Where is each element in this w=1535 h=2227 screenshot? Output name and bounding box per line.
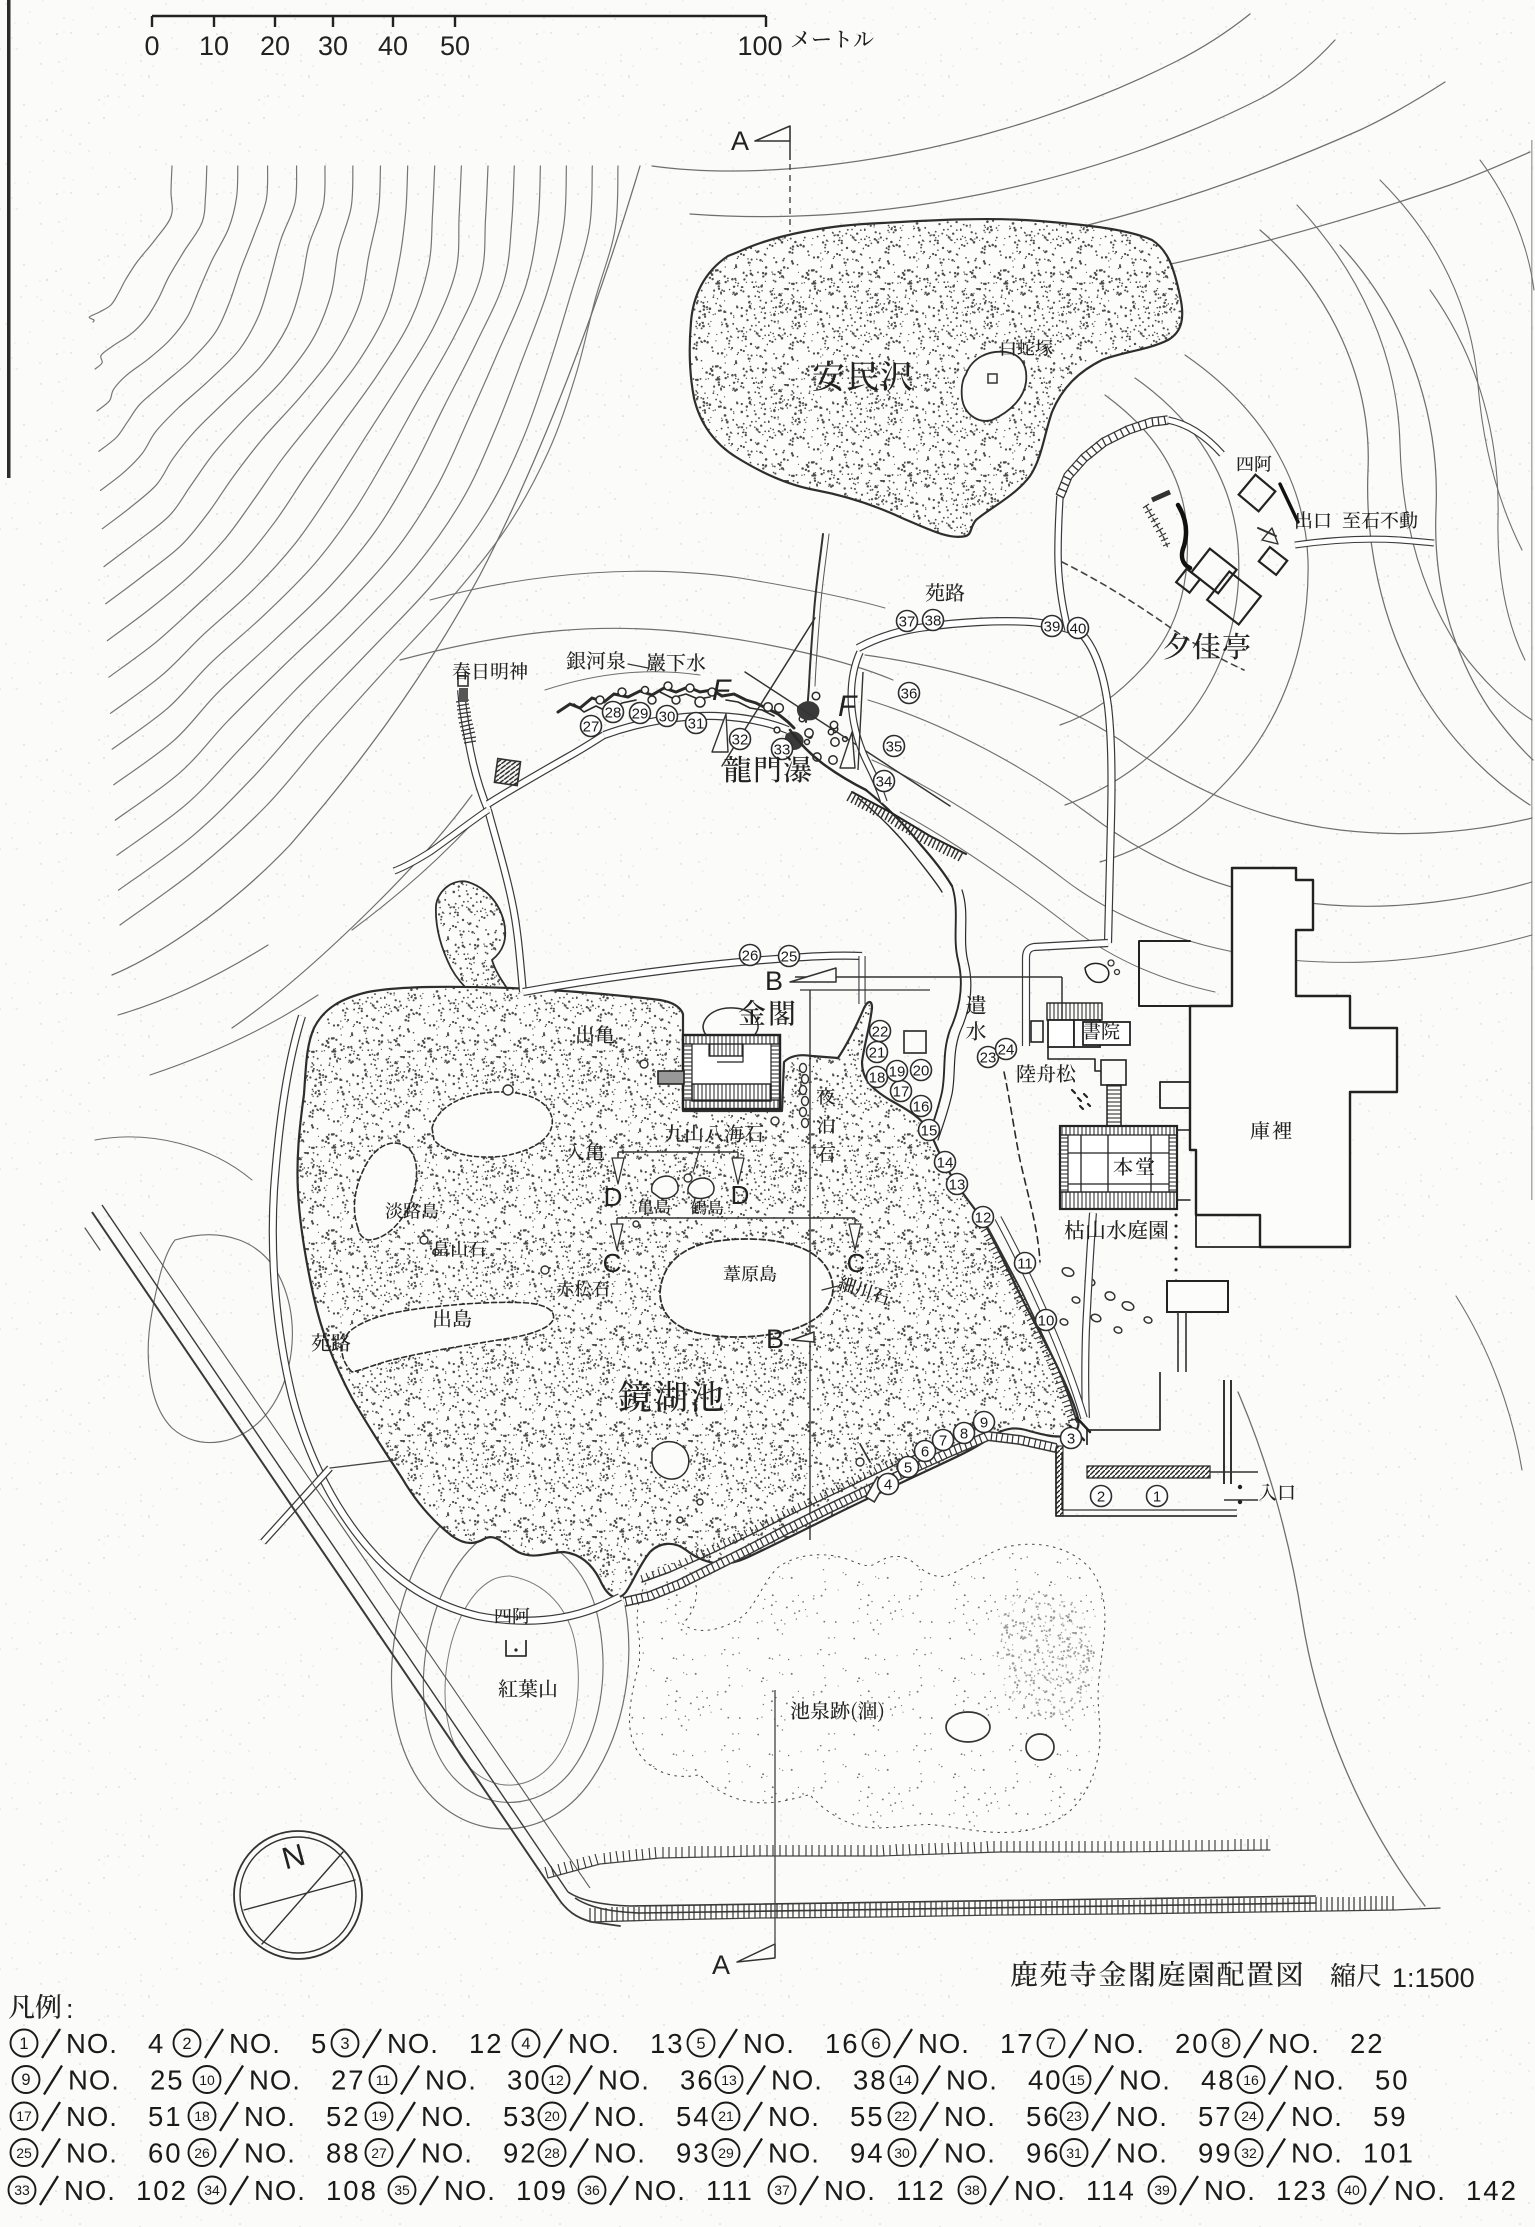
svg-text:17: 17 xyxy=(1000,2028,1035,2059)
svg-text:NO.: NO. xyxy=(444,2175,496,2206)
svg-text:10: 10 xyxy=(1038,1312,1055,1329)
svg-text:F: F xyxy=(712,674,732,707)
svg-text:1: 1 xyxy=(1153,1488,1161,1505)
svg-text:92: 92 xyxy=(503,2138,538,2169)
svg-text:25: 25 xyxy=(150,2065,185,2096)
svg-text:22: 22 xyxy=(1350,2028,1385,2059)
svg-text:NO.: NO. xyxy=(743,2028,795,2059)
svg-text:31: 31 xyxy=(688,715,705,732)
svg-text:13: 13 xyxy=(949,1176,966,1193)
svg-text:NO.: NO. xyxy=(66,2101,118,2132)
svg-text:99: 99 xyxy=(1198,2138,1233,2169)
svg-text:24: 24 xyxy=(998,1041,1015,1058)
svg-text:28: 28 xyxy=(544,2145,560,2161)
svg-text:50: 50 xyxy=(440,31,470,61)
svg-text:114: 114 xyxy=(1086,2175,1136,2206)
svg-text:5: 5 xyxy=(696,2035,705,2053)
svg-text:52: 52 xyxy=(326,2101,361,2132)
svg-text:A: A xyxy=(712,1950,730,1980)
svg-text:7: 7 xyxy=(1046,2035,1055,2053)
svg-text:NO.: NO. xyxy=(1116,2101,1168,2132)
svg-text:NO.: NO. xyxy=(594,2138,646,2169)
svg-text:36: 36 xyxy=(680,2065,715,2096)
svg-text:B: B xyxy=(765,966,783,996)
svg-text:2: 2 xyxy=(1097,1488,1105,1505)
svg-text:NO.: NO. xyxy=(594,2101,646,2132)
svg-text:11: 11 xyxy=(1017,1255,1033,1272)
svg-text:27: 27 xyxy=(371,2145,387,2161)
svg-text:A: A xyxy=(731,126,749,156)
svg-text:38: 38 xyxy=(853,2065,888,2096)
svg-text:1:1500: 1:1500 xyxy=(1392,1963,1475,1993)
svg-text:88: 88 xyxy=(326,2138,361,2169)
svg-text:NO.: NO. xyxy=(244,2101,296,2132)
svg-text:33: 33 xyxy=(14,2182,30,2198)
svg-text:9: 9 xyxy=(980,1414,988,1431)
svg-text:54: 54 xyxy=(676,2101,711,2132)
svg-text:NO.: NO. xyxy=(421,2138,473,2169)
svg-text:12: 12 xyxy=(469,2028,504,2059)
svg-text:30: 30 xyxy=(318,31,348,61)
svg-text:20: 20 xyxy=(913,1062,930,1079)
svg-text:6: 6 xyxy=(921,1443,929,1460)
svg-text:NO.: NO. xyxy=(944,2138,996,2169)
svg-text:19: 19 xyxy=(371,2108,387,2124)
svg-text:29: 29 xyxy=(632,705,649,722)
svg-text:NO.: NO. xyxy=(66,2138,118,2169)
svg-text:96: 96 xyxy=(1026,2138,1061,2169)
svg-text:13: 13 xyxy=(721,2072,737,2088)
svg-text:NO.: NO. xyxy=(918,2028,970,2059)
svg-text:26: 26 xyxy=(194,2145,210,2161)
svg-text:14: 14 xyxy=(896,2072,912,2088)
svg-text:F: F xyxy=(838,690,858,723)
svg-text:8: 8 xyxy=(960,1425,968,1442)
svg-text:53: 53 xyxy=(503,2101,538,2132)
svg-text:20: 20 xyxy=(544,2108,560,2124)
svg-text:108: 108 xyxy=(326,2175,378,2206)
svg-text:102: 102 xyxy=(136,2175,188,2206)
svg-text:17: 17 xyxy=(16,2108,32,2124)
svg-text:36: 36 xyxy=(901,685,918,702)
svg-text:NO.: NO. xyxy=(768,2138,820,2169)
svg-text:5: 5 xyxy=(904,1459,912,1476)
svg-text:NO.: NO. xyxy=(1093,2028,1145,2059)
svg-text:38: 38 xyxy=(964,2182,980,2198)
svg-text:C: C xyxy=(603,1248,622,1278)
svg-text:NO.: NO. xyxy=(64,2175,116,2206)
svg-text:36: 36 xyxy=(584,2182,600,2198)
svg-text:40: 40 xyxy=(1344,2182,1360,2198)
svg-text:142: 142 xyxy=(1466,2175,1518,2206)
svg-text:27: 27 xyxy=(583,718,600,735)
svg-text:NO.: NO. xyxy=(229,2028,281,2059)
svg-text:4: 4 xyxy=(521,2035,530,2053)
svg-text:NO.: NO. xyxy=(254,2175,306,2206)
svg-text:18: 18 xyxy=(194,2108,210,2124)
svg-text:NO.: NO. xyxy=(1204,2175,1256,2206)
svg-text:100: 100 xyxy=(737,31,782,61)
svg-text:10: 10 xyxy=(199,2072,215,2088)
svg-text:4: 4 xyxy=(884,1476,892,1493)
svg-text:59: 59 xyxy=(1373,2101,1408,2132)
svg-text:NO.: NO. xyxy=(771,2065,823,2096)
svg-text:12: 12 xyxy=(548,2072,564,2088)
svg-text:20: 20 xyxy=(1175,2028,1210,2059)
svg-text:26: 26 xyxy=(742,947,759,964)
svg-text:NO.: NO. xyxy=(1119,2065,1171,2096)
svg-text:NO.: NO. xyxy=(1014,2175,1066,2206)
svg-text:109: 109 xyxy=(516,2175,568,2206)
svg-text:25: 25 xyxy=(16,2145,32,2161)
svg-text:34: 34 xyxy=(876,773,893,790)
svg-text:40: 40 xyxy=(1028,2065,1063,2096)
svg-text:C: C xyxy=(847,1248,866,1278)
svg-text:60: 60 xyxy=(148,2138,183,2169)
svg-text:20: 20 xyxy=(260,31,290,61)
svg-text:12: 12 xyxy=(975,1209,992,1226)
svg-text:NO.: NO. xyxy=(946,2065,998,2096)
svg-text:123: 123 xyxy=(1276,2175,1328,2206)
svg-text:NO.: NO. xyxy=(768,2101,820,2132)
svg-text:16: 16 xyxy=(913,1098,930,1115)
svg-text:NO.: NO. xyxy=(66,2028,118,2059)
svg-text:NO.: NO. xyxy=(68,2065,120,2096)
svg-text:31: 31 xyxy=(1066,2145,1082,2161)
svg-text:51: 51 xyxy=(148,2101,183,2132)
svg-text:D: D xyxy=(604,1182,623,1212)
svg-text:30: 30 xyxy=(894,2145,910,2161)
svg-text:NO.: NO. xyxy=(1394,2175,1446,2206)
svg-text:55: 55 xyxy=(850,2101,885,2132)
svg-text:NO.: NO. xyxy=(249,2065,301,2096)
svg-text:NO.: NO. xyxy=(244,2138,296,2169)
svg-text:28: 28 xyxy=(605,704,622,721)
svg-text:35: 35 xyxy=(394,2182,410,2198)
svg-text:16: 16 xyxy=(1243,2072,1259,2088)
svg-text:3: 3 xyxy=(340,2035,349,2053)
svg-text:2: 2 xyxy=(182,2035,191,2053)
svg-text:37: 37 xyxy=(899,613,916,630)
svg-text:23: 23 xyxy=(1066,2108,1082,2124)
svg-text:11: 11 xyxy=(376,2072,391,2088)
svg-text:48: 48 xyxy=(1201,2065,1236,2096)
svg-text:23: 23 xyxy=(980,1049,997,1066)
svg-text:NO.: NO. xyxy=(1291,2138,1343,2169)
svg-text:57: 57 xyxy=(1198,2101,1233,2132)
svg-text:101: 101 xyxy=(1363,2138,1415,2169)
svg-text::: : xyxy=(66,1994,74,2024)
svg-text:112: 112 xyxy=(896,2175,946,2206)
svg-text:NO.: NO. xyxy=(1293,2065,1345,2096)
svg-text:16: 16 xyxy=(825,2028,860,2059)
svg-text:9: 9 xyxy=(21,2071,30,2089)
svg-text:37: 37 xyxy=(774,2182,790,2198)
svg-text:27: 27 xyxy=(331,2065,366,2096)
svg-text:4: 4 xyxy=(148,2028,165,2059)
svg-text:6: 6 xyxy=(871,2035,880,2053)
svg-text:0: 0 xyxy=(144,31,159,61)
svg-text:17: 17 xyxy=(893,1083,910,1100)
svg-text:18: 18 xyxy=(869,1069,886,1086)
svg-text:40: 40 xyxy=(1070,620,1087,637)
svg-text:B: B xyxy=(766,1324,784,1354)
svg-text:32: 32 xyxy=(732,731,749,748)
svg-text:7: 7 xyxy=(939,1432,947,1449)
svg-text:39: 39 xyxy=(1154,2182,1170,2198)
svg-text:NO.: NO. xyxy=(421,2101,473,2132)
svg-text:56: 56 xyxy=(1026,2101,1061,2132)
svg-text:35: 35 xyxy=(886,738,903,755)
svg-text:3: 3 xyxy=(1067,1430,1075,1447)
svg-text:5: 5 xyxy=(311,2028,328,2059)
svg-text:NO.: NO. xyxy=(598,2065,650,2096)
svg-text:14: 14 xyxy=(937,1154,954,1171)
svg-text:22: 22 xyxy=(894,2108,910,2124)
svg-text:NO.: NO. xyxy=(568,2028,620,2059)
svg-text:34: 34 xyxy=(204,2182,220,2198)
svg-text:13: 13 xyxy=(650,2028,685,2059)
svg-text:93: 93 xyxy=(676,2138,711,2169)
svg-text:8: 8 xyxy=(1221,2035,1230,2053)
svg-text:21: 21 xyxy=(869,1044,886,1061)
svg-text:15: 15 xyxy=(921,1122,938,1139)
svg-text:NO.: NO. xyxy=(387,2028,439,2059)
svg-text:32: 32 xyxy=(1241,2145,1257,2161)
svg-text:NO.: NO. xyxy=(425,2065,477,2096)
svg-text:38: 38 xyxy=(925,612,942,629)
svg-text:50: 50 xyxy=(1375,2065,1410,2096)
svg-text:D: D xyxy=(731,1180,750,1210)
svg-text:24: 24 xyxy=(1241,2108,1257,2124)
svg-text:39: 39 xyxy=(1044,618,1061,635)
svg-text:NO.: NO. xyxy=(824,2175,876,2206)
svg-text:19: 19 xyxy=(889,1063,906,1080)
svg-text:NO.: NO. xyxy=(634,2175,686,2206)
svg-text:10: 10 xyxy=(199,31,229,61)
svg-text:25: 25 xyxy=(781,948,798,965)
svg-text:30: 30 xyxy=(659,708,676,725)
svg-text:30: 30 xyxy=(507,2065,542,2096)
svg-text:111: 111 xyxy=(706,2175,754,2206)
svg-text:29: 29 xyxy=(718,2145,734,2161)
svg-text:22: 22 xyxy=(872,1023,889,1040)
svg-text:NO.: NO. xyxy=(944,2101,996,2132)
svg-text:NO.: NO. xyxy=(1116,2138,1168,2169)
svg-text:NO.: NO. xyxy=(1268,2028,1320,2059)
svg-text:NO.: NO. xyxy=(1291,2101,1343,2132)
svg-text:40: 40 xyxy=(378,31,408,61)
svg-text:33: 33 xyxy=(774,741,791,758)
svg-text:94: 94 xyxy=(850,2138,885,2169)
svg-text:21: 21 xyxy=(718,2108,734,2124)
svg-text:1: 1 xyxy=(19,2035,28,2053)
svg-text:15: 15 xyxy=(1069,2072,1085,2088)
